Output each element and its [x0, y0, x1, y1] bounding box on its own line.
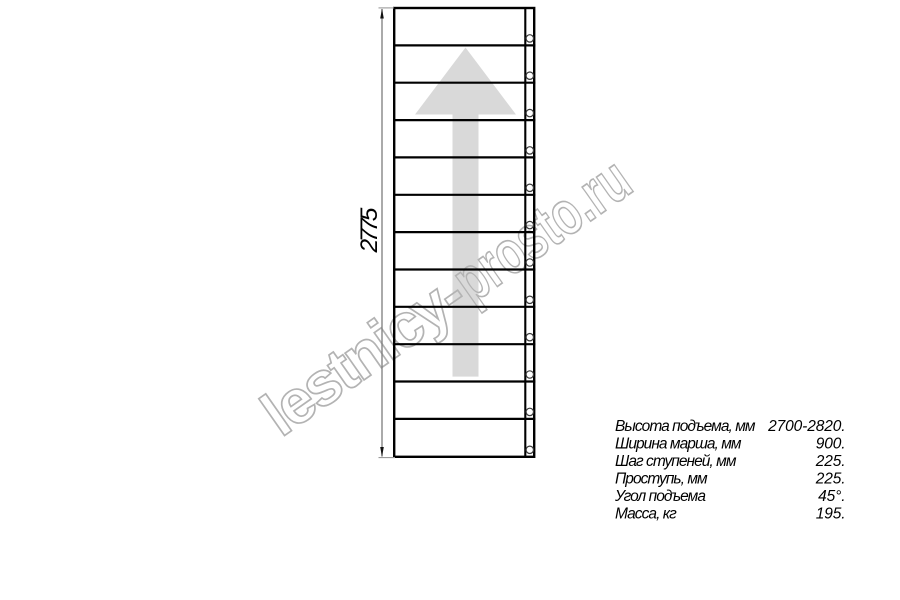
- svg-text:Проступь, мм: Проступь, мм: [615, 470, 708, 487]
- svg-text:225.: 225.: [815, 470, 846, 487]
- svg-text:2700-2820.: 2700-2820.: [767, 418, 845, 435]
- svg-text:Шаг ступеней, мм: Шаг ступеней, мм: [615, 453, 737, 470]
- svg-text:900.: 900.: [816, 436, 846, 453]
- svg-text:Высота подъема, мм: Высота подъема, мм: [615, 418, 756, 435]
- svg-text:Масса, кг: Масса, кг: [615, 505, 677, 522]
- svg-text:45°.: 45°.: [818, 488, 845, 505]
- svg-text:2775: 2775: [356, 207, 383, 253]
- svg-text:225.: 225.: [815, 453, 846, 470]
- svg-text:Ширина марша, мм: Ширина марша, мм: [615, 436, 742, 453]
- svg-text:195.: 195.: [816, 505, 846, 522]
- svg-text:Угол подъема: Угол подъема: [614, 488, 706, 505]
